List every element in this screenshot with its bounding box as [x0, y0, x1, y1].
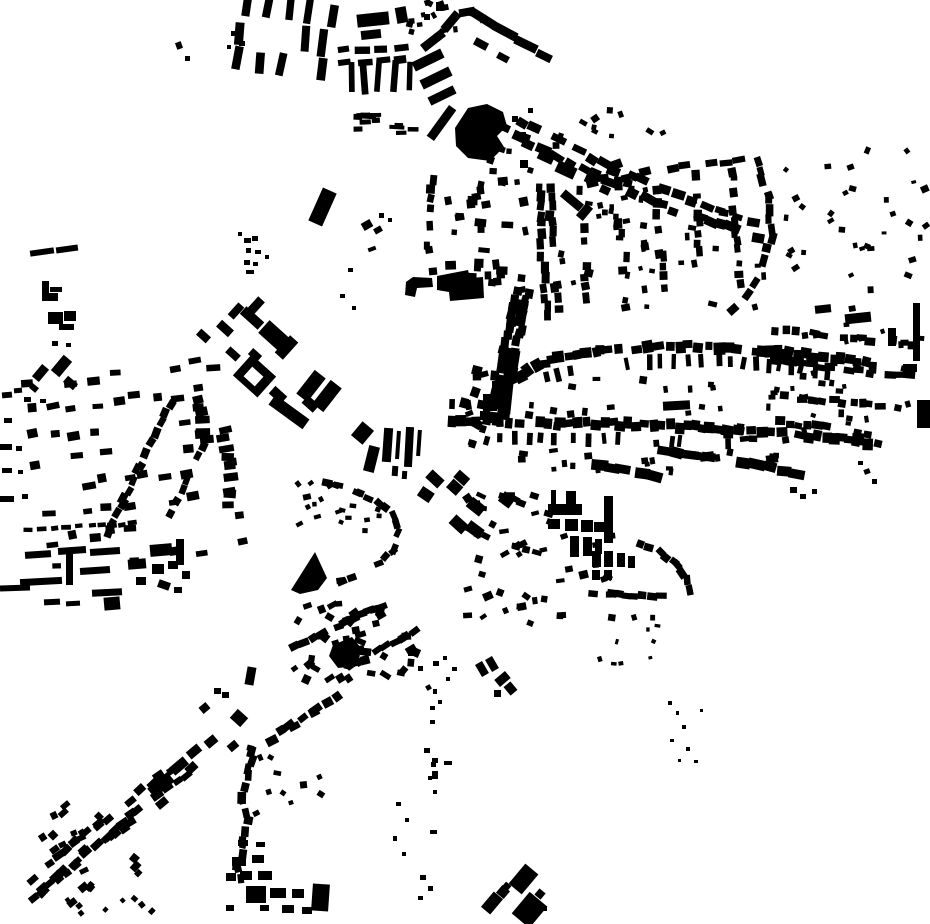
building	[536, 238, 544, 250]
building	[525, 411, 534, 419]
building	[535, 49, 553, 63]
building	[89, 533, 101, 542]
building	[776, 427, 787, 437]
building	[588, 590, 598, 597]
building	[157, 579, 171, 591]
building	[583, 537, 592, 556]
building	[842, 190, 849, 197]
district-nw-lone-slab	[308, 188, 336, 227]
district-ls-diag-street-a	[103, 399, 176, 539]
building	[597, 656, 603, 662]
building	[432, 758, 438, 763]
building	[747, 217, 761, 227]
building	[559, 258, 565, 265]
building	[736, 260, 742, 266]
building	[639, 376, 648, 385]
building	[838, 409, 844, 417]
building	[853, 366, 864, 374]
building	[356, 113, 370, 119]
building	[867, 246, 875, 251]
building	[571, 433, 576, 443]
building	[485, 271, 492, 279]
building	[549, 225, 556, 236]
building	[560, 533, 568, 540]
building	[102, 906, 108, 912]
building	[551, 490, 556, 504]
building	[447, 416, 456, 428]
building	[920, 184, 930, 193]
building	[595, 174, 608, 182]
building	[731, 344, 742, 355]
building	[543, 371, 551, 382]
building	[175, 41, 183, 50]
building	[651, 639, 657, 645]
building	[894, 404, 902, 412]
building	[741, 288, 753, 301]
building	[424, 748, 430, 753]
building	[47, 830, 58, 841]
building	[786, 421, 795, 428]
building	[449, 399, 455, 409]
building	[643, 543, 654, 553]
building	[555, 305, 564, 313]
building	[374, 45, 387, 53]
building	[650, 615, 655, 621]
district-east-sparse-n	[783, 146, 930, 293]
building	[349, 503, 356, 508]
building	[604, 559, 611, 565]
building	[512, 431, 518, 445]
building	[331, 691, 343, 703]
building	[544, 310, 551, 320]
building	[255, 52, 265, 74]
district-left-suburb-grid	[21, 357, 248, 569]
building	[783, 167, 789, 173]
building	[165, 508, 175, 519]
building	[313, 514, 321, 520]
building	[245, 666, 257, 685]
building	[317, 29, 329, 58]
building	[226, 905, 234, 911]
building	[818, 352, 829, 363]
building	[222, 692, 229, 698]
district-industrial	[196, 296, 319, 429]
building	[240, 782, 250, 793]
building	[301, 674, 312, 685]
building	[705, 342, 712, 350]
building	[113, 396, 125, 406]
building	[483, 436, 491, 446]
building	[693, 210, 702, 217]
building	[335, 673, 346, 684]
building	[388, 218, 392, 222]
building	[595, 345, 604, 354]
building	[752, 233, 759, 240]
building	[97, 522, 106, 527]
building	[582, 408, 588, 416]
building	[537, 432, 544, 443]
building	[193, 450, 203, 461]
building	[257, 754, 264, 762]
building	[463, 586, 472, 593]
building	[557, 612, 566, 618]
landmark-building	[455, 104, 507, 161]
building	[497, 177, 508, 186]
building	[67, 530, 77, 540]
building	[302, 493, 311, 500]
building	[519, 450, 528, 457]
building	[615, 639, 619, 645]
building	[658, 354, 663, 369]
building	[736, 279, 744, 289]
landmark-building	[405, 277, 433, 297]
building	[566, 491, 576, 504]
building	[516, 603, 524, 610]
building	[568, 383, 577, 390]
building	[300, 781, 308, 789]
building	[307, 480, 314, 487]
building	[753, 356, 759, 370]
building	[430, 175, 438, 186]
building	[61, 525, 71, 530]
building	[638, 166, 651, 177]
building	[374, 59, 382, 92]
building	[580, 223, 588, 233]
building	[596, 213, 602, 219]
building	[882, 231, 887, 234]
building	[478, 247, 490, 253]
building	[734, 271, 743, 278]
building	[858, 461, 863, 465]
building	[609, 134, 614, 139]
building	[255, 250, 261, 254]
building	[425, 469, 444, 488]
building	[768, 395, 775, 400]
building	[686, 747, 690, 751]
building	[340, 294, 345, 298]
building	[645, 469, 663, 483]
building	[740, 357, 747, 370]
building	[433, 661, 439, 666]
building	[206, 364, 220, 371]
building	[2, 468, 12, 473]
building	[578, 570, 589, 580]
building	[417, 486, 435, 503]
building	[864, 415, 869, 422]
building	[539, 283, 547, 293]
building	[430, 706, 435, 710]
district-mid-left-specks	[238, 232, 269, 274]
building	[567, 365, 574, 376]
building	[712, 246, 719, 252]
building	[232, 857, 246, 866]
building	[285, 0, 294, 20]
building	[652, 341, 664, 351]
building	[554, 292, 562, 303]
building	[221, 453, 234, 461]
building	[295, 520, 303, 527]
building	[601, 433, 606, 444]
building	[418, 666, 423, 671]
building	[631, 614, 638, 621]
building	[863, 430, 872, 438]
building	[127, 391, 140, 399]
building	[196, 550, 208, 557]
building	[725, 438, 731, 449]
building	[517, 274, 525, 282]
building	[731, 176, 738, 181]
building	[488, 520, 497, 529]
building	[546, 183, 554, 193]
building	[52, 563, 61, 569]
building	[496, 420, 504, 427]
building	[360, 647, 372, 656]
building	[288, 800, 294, 806]
building	[705, 159, 718, 167]
building	[302, 907, 312, 914]
building	[494, 690, 501, 697]
building	[614, 344, 623, 354]
building	[133, 783, 146, 796]
building	[518, 196, 528, 207]
building	[148, 907, 156, 915]
building	[613, 225, 619, 230]
building	[496, 52, 510, 64]
building	[607, 404, 615, 410]
building	[594, 522, 604, 532]
building	[521, 592, 531, 601]
building	[198, 702, 210, 714]
building	[362, 528, 368, 533]
building	[644, 304, 649, 309]
building	[265, 789, 272, 796]
building	[216, 433, 230, 443]
building	[668, 701, 672, 705]
district-ls-left-edge	[0, 388, 28, 502]
building	[617, 110, 624, 118]
building	[518, 456, 526, 463]
building	[691, 170, 700, 181]
building	[604, 345, 613, 353]
building	[714, 454, 720, 462]
building	[90, 547, 120, 556]
building	[305, 504, 311, 510]
district-sc-school	[548, 490, 613, 557]
building	[188, 357, 201, 365]
building	[657, 421, 666, 430]
building	[182, 571, 190, 579]
building	[222, 501, 234, 508]
building	[427, 204, 435, 212]
building	[407, 658, 414, 666]
building	[620, 195, 628, 201]
building	[892, 371, 904, 378]
building	[361, 219, 374, 231]
building	[79, 867, 89, 875]
building	[419, 66, 452, 89]
building	[150, 543, 173, 557]
building	[853, 358, 862, 367]
building	[417, 22, 423, 27]
building	[59, 324, 74, 330]
figure-ground-map	[0, 0, 930, 924]
building	[369, 113, 381, 117]
building	[468, 196, 478, 205]
building	[46, 542, 58, 549]
building	[416, 430, 422, 456]
building	[773, 453, 779, 459]
building	[652, 209, 660, 219]
building	[903, 147, 910, 154]
district-far-left-landmarks	[30, 244, 79, 330]
building	[516, 551, 523, 558]
building	[903, 364, 917, 372]
building	[479, 613, 487, 620]
building	[363, 494, 374, 503]
building	[390, 60, 399, 92]
building	[506, 148, 512, 154]
building	[18, 470, 23, 474]
building	[455, 213, 463, 220]
building	[571, 280, 577, 286]
building	[430, 830, 437, 834]
building	[275, 52, 287, 76]
building	[526, 619, 534, 627]
building	[824, 164, 831, 170]
building	[246, 886, 266, 903]
building	[244, 260, 250, 265]
building	[570, 463, 575, 470]
building	[179, 419, 191, 426]
building	[465, 400, 472, 411]
building	[345, 516, 351, 520]
building	[66, 551, 73, 585]
building	[532, 597, 538, 605]
building	[65, 405, 76, 412]
building	[243, 815, 253, 825]
building	[23, 528, 32, 533]
building	[761, 243, 771, 253]
building	[653, 198, 662, 208]
building	[501, 221, 513, 228]
building	[631, 345, 642, 354]
building	[656, 592, 667, 598]
district-loop-west-approach	[294, 480, 332, 528]
building	[408, 650, 414, 656]
building	[545, 301, 551, 312]
building	[865, 370, 874, 378]
building	[292, 889, 304, 898]
building	[500, 550, 510, 559]
building	[363, 445, 380, 473]
district-triangle-hall	[291, 552, 327, 594]
building	[652, 185, 661, 194]
building	[542, 906, 547, 911]
building	[291, 665, 299, 673]
building	[241, 826, 249, 837]
district-se-block-rows	[591, 445, 806, 483]
building	[316, 774, 323, 781]
building	[303, 602, 313, 610]
building	[228, 302, 245, 319]
building	[848, 185, 856, 192]
building	[864, 146, 871, 154]
building	[420, 29, 446, 52]
building	[904, 271, 913, 279]
building	[408, 18, 415, 24]
building	[186, 744, 203, 760]
building	[592, 562, 599, 568]
district-bl-bottom-dots	[65, 895, 156, 917]
building	[537, 228, 546, 239]
building	[204, 734, 219, 749]
building	[639, 420, 649, 428]
district-north-top-bars	[356, 2, 443, 40]
building	[843, 337, 848, 344]
building	[542, 272, 550, 284]
building	[593, 377, 601, 381]
building	[597, 202, 604, 209]
building	[512, 116, 518, 122]
district-sc-arc	[588, 539, 694, 601]
building	[80, 566, 110, 575]
building	[579, 119, 588, 127]
building	[97, 473, 107, 483]
building	[582, 417, 591, 427]
building	[231, 46, 244, 71]
district-core-n-frontage-b	[545, 183, 564, 312]
building	[223, 489, 236, 499]
building	[522, 545, 531, 553]
building	[537, 252, 544, 262]
building	[26, 874, 39, 886]
building	[670, 739, 674, 742]
building	[640, 222, 648, 229]
building	[2, 392, 12, 399]
building	[694, 230, 702, 238]
building	[685, 233, 690, 241]
building	[27, 403, 37, 413]
building	[749, 276, 760, 289]
building	[368, 246, 377, 252]
building	[654, 624, 660, 628]
building	[359, 63, 368, 95]
building	[515, 419, 525, 428]
building	[438, 700, 442, 704]
district-sw-arm-scatter	[246, 744, 325, 817]
building	[492, 259, 500, 270]
building	[581, 281, 591, 290]
building	[411, 48, 444, 71]
building	[567, 410, 575, 418]
building	[846, 163, 854, 170]
building	[303, 0, 314, 24]
building	[224, 460, 236, 470]
building	[214, 688, 221, 694]
building	[430, 12, 437, 20]
building	[427, 85, 456, 105]
building	[801, 332, 808, 339]
building	[473, 37, 489, 51]
district-east-band	[769, 326, 919, 439]
building	[756, 427, 768, 438]
building	[240, 871, 252, 880]
building	[0, 496, 14, 502]
building	[226, 873, 236, 881]
building	[845, 312, 872, 325]
building	[153, 393, 162, 402]
building	[246, 744, 254, 751]
